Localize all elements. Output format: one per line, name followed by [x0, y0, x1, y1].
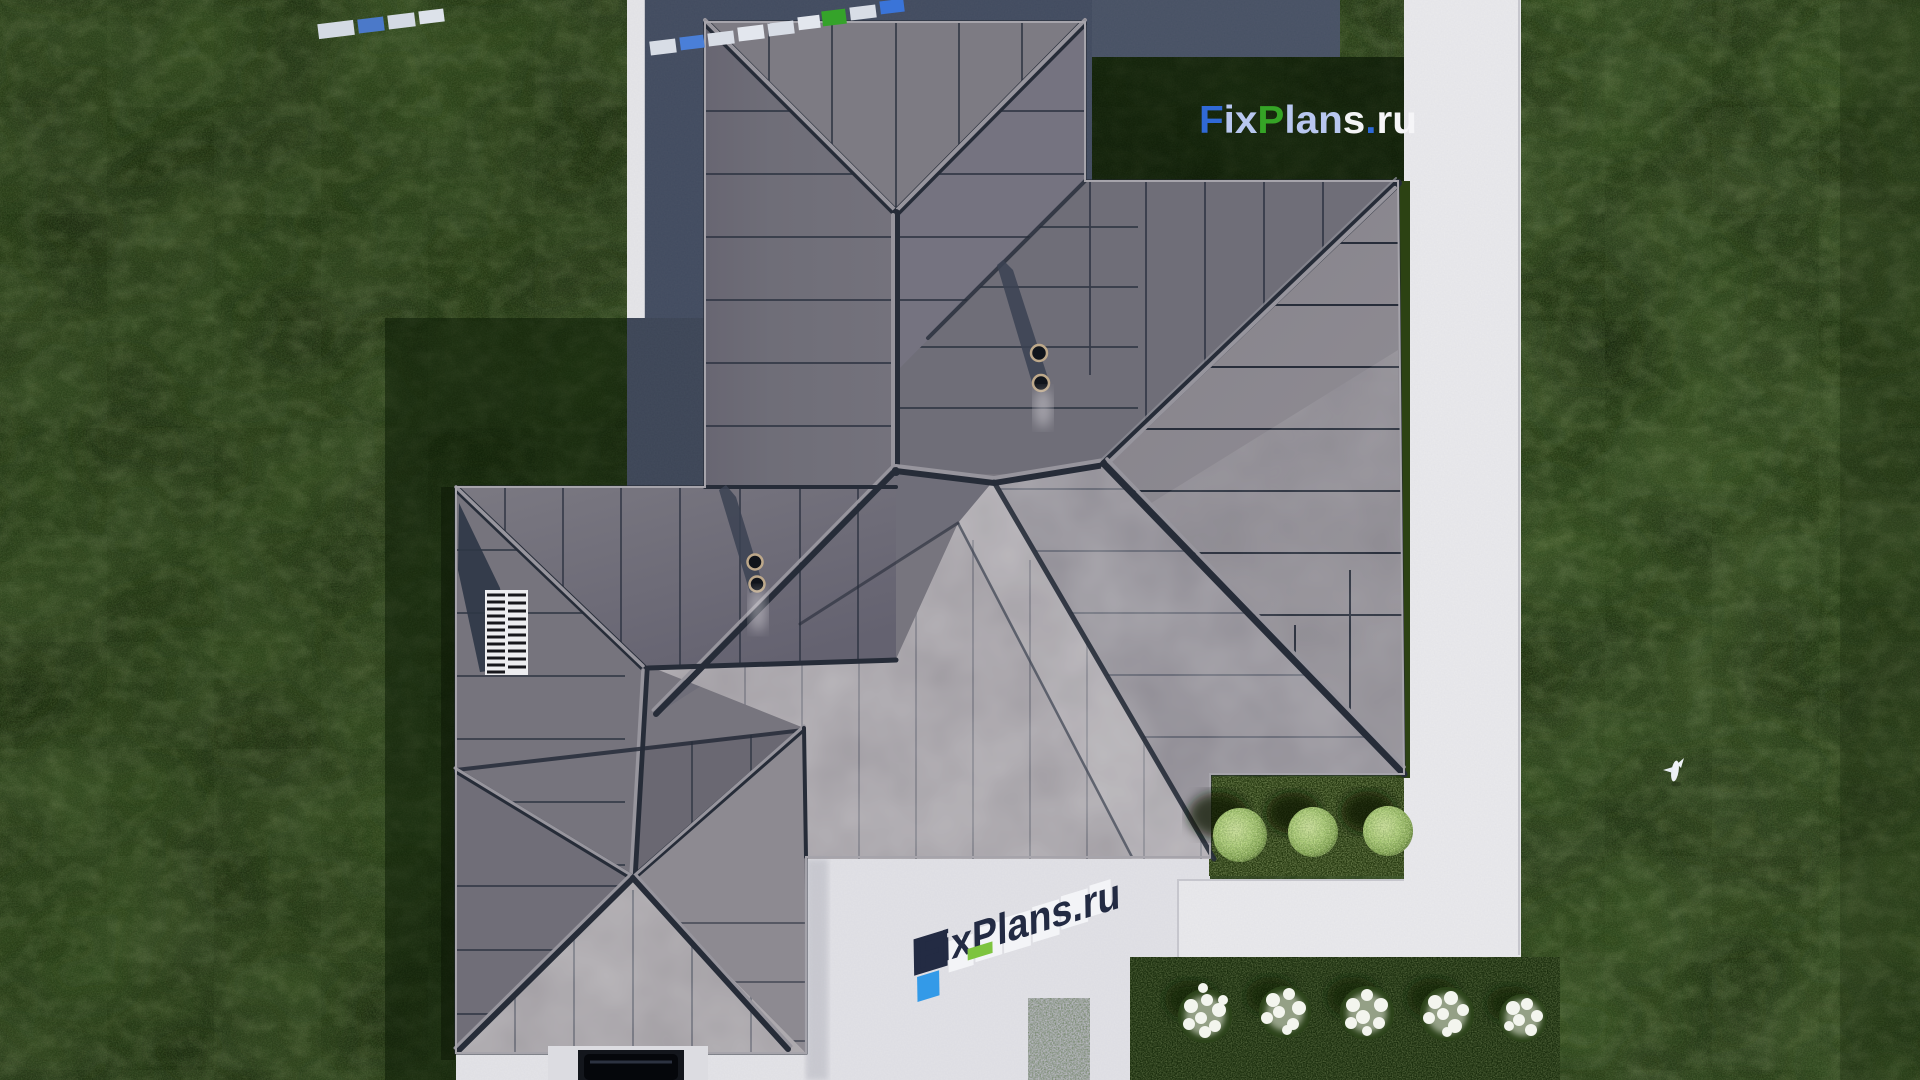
svg-text:FixPlans.ru: FixPlans.ru [1199, 99, 1417, 142]
